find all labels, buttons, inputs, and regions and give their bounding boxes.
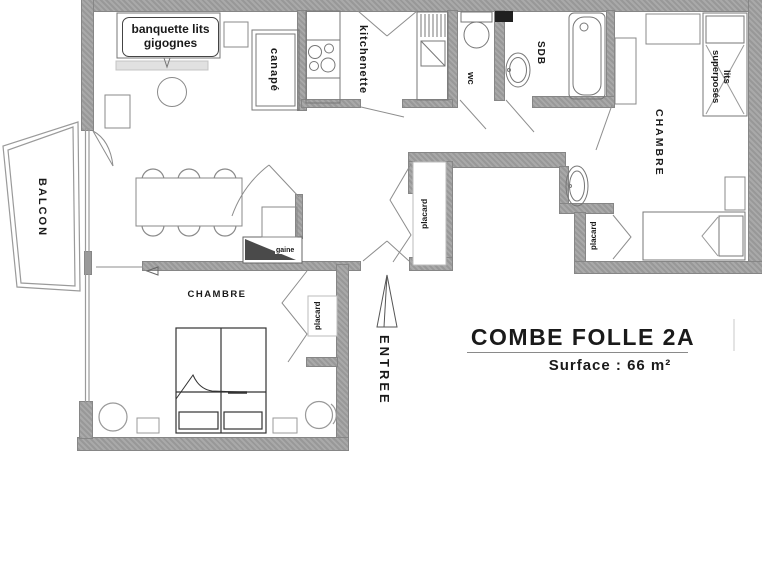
dining-table (136, 178, 242, 226)
door-arrow-glyph (147, 267, 158, 275)
placard-hall-box (413, 162, 446, 265)
window-left (86, 128, 90, 402)
double-bed (176, 328, 266, 433)
fridge-unit (417, 12, 448, 100)
floor-plan: banquette lits gigognes BALCON canapé ki… (0, 0, 762, 576)
toilet (461, 12, 492, 48)
banquette-seat (116, 61, 208, 70)
side-unit-right (224, 22, 248, 47)
lits-superposes-label: superposés lits (704, 42, 738, 112)
round-table (158, 78, 187, 107)
lits-superposes-line1: lits (721, 42, 732, 112)
shelf-top (646, 14, 700, 44)
title-underline (467, 352, 688, 353)
gaine-label: gaine (275, 247, 295, 254)
gaine-shape (243, 207, 302, 263)
sdb-label: SDB (535, 37, 546, 69)
chambre-right-label: CHAMBRE (653, 105, 665, 181)
kitchen-counter (306, 11, 340, 103)
entree-label: ENTREE (377, 331, 392, 409)
bathroom-sink (506, 53, 530, 87)
canape-label: canapé (268, 39, 280, 101)
single-bed (643, 177, 745, 260)
side-unit-left (105, 95, 130, 128)
balcon-label: BALCON (36, 179, 48, 237)
plan-title: COMBE FOLLE 2A (463, 324, 703, 351)
nightstand-right (273, 418, 297, 433)
wc-label: wc (465, 64, 476, 92)
placard-chambre-right-label: placard (589, 213, 598, 259)
banquette-label: banquette lits gigognes (122, 17, 219, 57)
placard-chambre-left-label: placard (313, 294, 322, 338)
chambre-left-label: CHAMBRE (186, 289, 248, 300)
kitchenette-label: kitchenette (357, 16, 369, 104)
entrance-arrow (377, 275, 397, 327)
furniture-layer (0, 0, 762, 576)
plan-surface: Surface : 66 m² (530, 357, 690, 374)
bathtub (569, 13, 605, 99)
lits-superposes-line2: superposés (710, 42, 721, 112)
placard-hall-label: placard (419, 178, 429, 250)
chamber-sink (566, 166, 588, 206)
nightstand-left (137, 418, 159, 433)
wardrobe-tall (615, 38, 636, 104)
